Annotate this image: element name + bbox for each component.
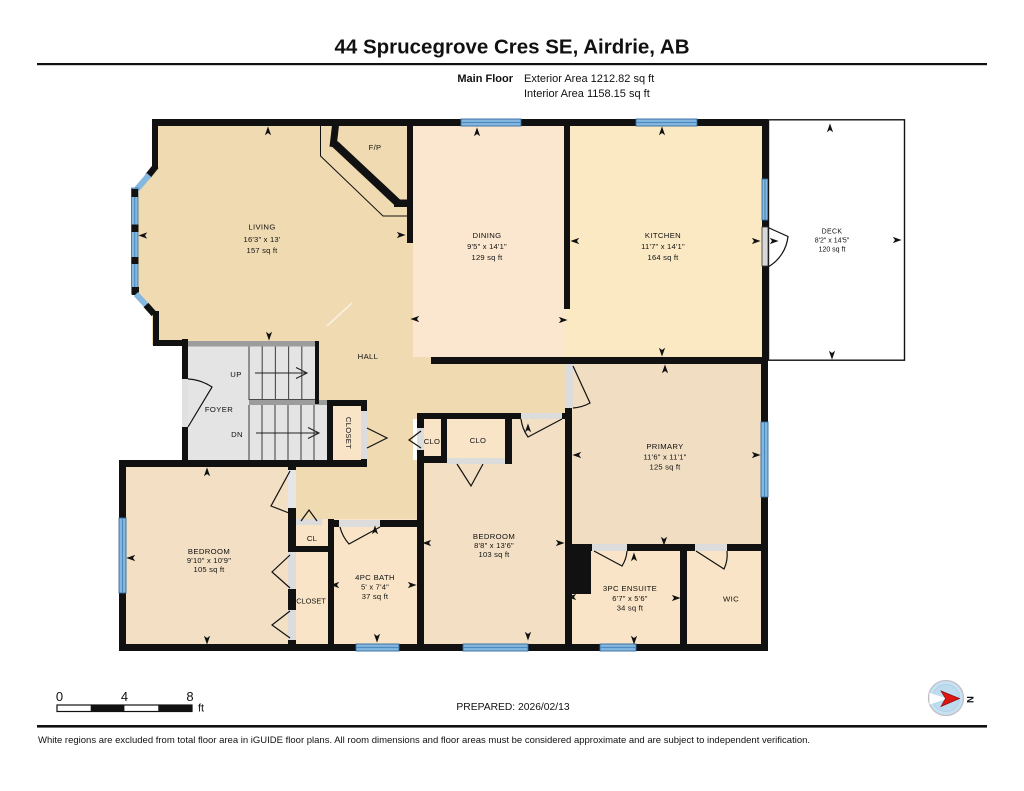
svg-text:WIC: WIC <box>723 595 739 604</box>
svg-text:37 sq ft: 37 sq ft <box>362 592 389 601</box>
svg-text:CLOSET: CLOSET <box>296 597 326 606</box>
svg-text:3PC ENSUITE: 3PC ENSUITE <box>603 584 657 593</box>
svg-text:120 sq ft: 120 sq ft <box>819 247 846 254</box>
svg-text:9'10" x 10'9": 9'10" x 10'9" <box>187 556 231 565</box>
svg-text:PREPARED: 2026/02/13: PREPARED: 2026/02/13 <box>456 702 569 713</box>
svg-text:PRIMARY: PRIMARY <box>646 442 683 451</box>
svg-text:CLOSET: CLOSET <box>344 417 353 449</box>
svg-text:34 sq ft: 34 sq ft <box>617 604 644 613</box>
svg-text:4: 4 <box>121 689 128 704</box>
svg-text:8: 8 <box>186 689 193 704</box>
svg-text:129 sq ft: 129 sq ft <box>472 253 504 262</box>
svg-text:8'2" x 14'5": 8'2" x 14'5" <box>815 238 850 245</box>
svg-text:CL: CL <box>307 534 317 543</box>
svg-text:Main Floor: Main Floor <box>457 73 513 85</box>
svg-text:8'8" x 13'6": 8'8" x 13'6" <box>474 541 514 550</box>
svg-text:Exterior Area 1212.82 sq ft: Exterior Area 1212.82 sq ft <box>524 73 654 85</box>
svg-text:0: 0 <box>56 689 63 704</box>
svg-text:CLO: CLO <box>470 436 487 445</box>
svg-text:BEDROOM: BEDROOM <box>473 532 515 541</box>
svg-text:DN: DN <box>231 430 243 439</box>
svg-text:DECK: DECK <box>822 229 843 236</box>
svg-text:164 sq ft: 164 sq ft <box>648 253 680 262</box>
svg-text:125 sq ft: 125 sq ft <box>650 463 682 472</box>
svg-text:11'7" x 14'1": 11'7" x 14'1" <box>641 242 685 251</box>
svg-text:HALL: HALL <box>358 352 379 361</box>
svg-text:11'6" x 11'1": 11'6" x 11'1" <box>643 453 686 462</box>
svg-text:LIVING: LIVING <box>248 223 275 232</box>
svg-text:White regions are excluded fro: White regions are excluded from total fl… <box>38 735 810 746</box>
svg-text:ft: ft <box>198 703 204 715</box>
svg-text:DINING: DINING <box>472 231 501 240</box>
svg-text:N: N <box>964 696 975 703</box>
svg-text:44 Sprucegrove Cres SE, Airdri: 44 Sprucegrove Cres SE, Airdrie, AB <box>334 36 689 59</box>
svg-text:F/P: F/P <box>369 143 382 152</box>
svg-text:Interior Area 1158.15 sq ft: Interior Area 1158.15 sq ft <box>524 88 650 100</box>
svg-text:FOYER: FOYER <box>205 405 233 414</box>
svg-text:16'3" x 13': 16'3" x 13' <box>244 235 281 244</box>
svg-text:105 sq ft: 105 sq ft <box>194 565 226 574</box>
svg-text:157 sq ft: 157 sq ft <box>247 246 279 255</box>
svg-text:4PC BATH: 4PC BATH <box>355 573 395 582</box>
svg-text:BEDROOM: BEDROOM <box>188 547 230 556</box>
svg-text:6'7" x 5'6": 6'7" x 5'6" <box>612 594 648 603</box>
svg-text:KITCHEN: KITCHEN <box>645 231 681 240</box>
svg-text:103 sq ft: 103 sq ft <box>479 550 511 559</box>
svg-text:CLO: CLO <box>424 437 441 446</box>
svg-text:9'5" x 14'1": 9'5" x 14'1" <box>467 242 507 251</box>
svg-text:UP: UP <box>230 370 241 379</box>
svg-text:5' x 7'4": 5' x 7'4" <box>361 583 389 592</box>
